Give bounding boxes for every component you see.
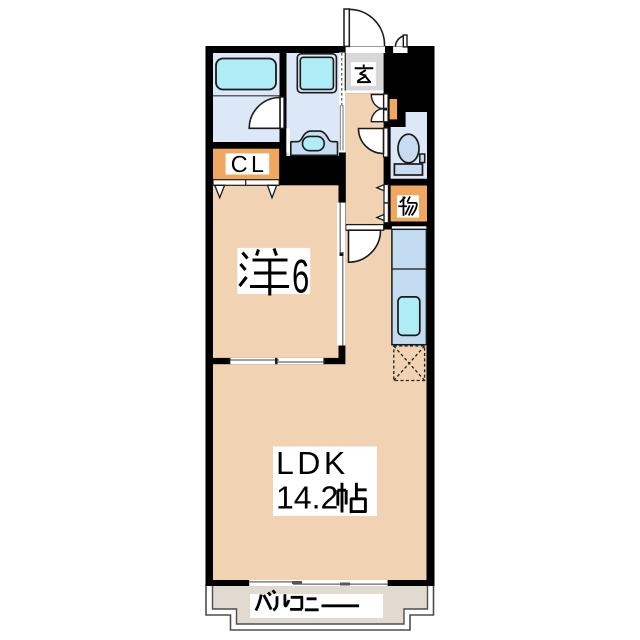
svg-text:CL: CL	[231, 151, 268, 177]
svg-text:6: 6	[292, 251, 309, 304]
svg-text:14.2: 14.2	[276, 480, 338, 516]
svg-text:LDK: LDK	[276, 445, 349, 481]
